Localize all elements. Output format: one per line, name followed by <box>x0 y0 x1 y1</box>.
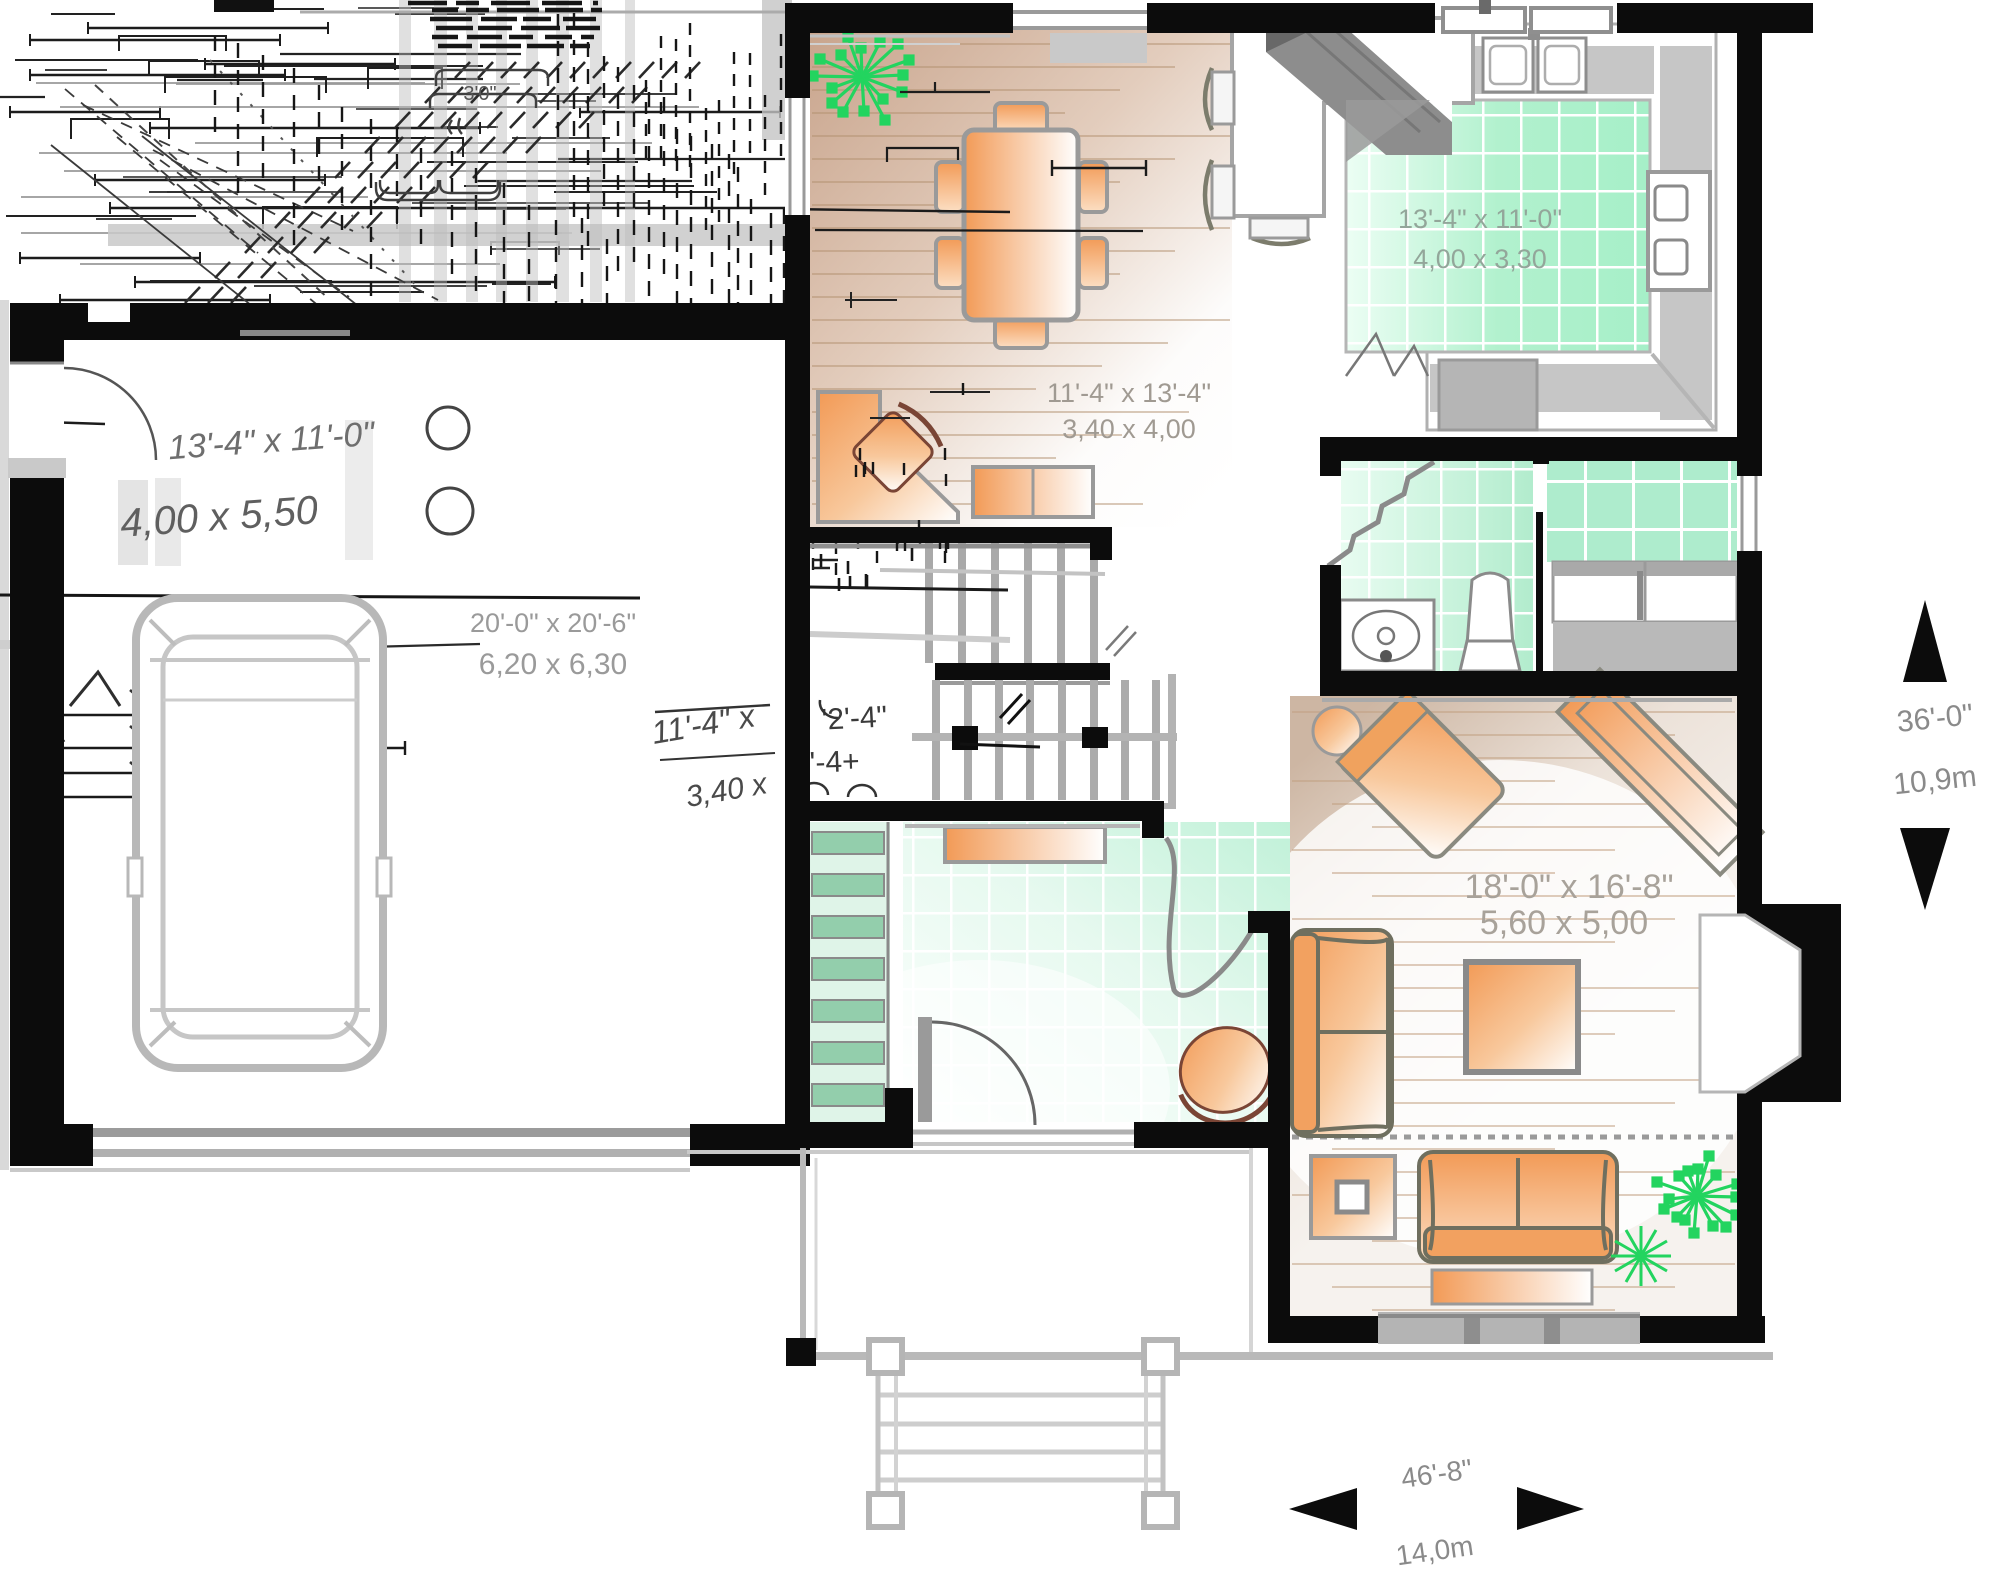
svg-text:6,20 x 6,30: 6,20 x 6,30 <box>479 648 627 681</box>
svg-text:20'-0" x 20'-6": 20'-0" x 20'-6" <box>470 608 636 638</box>
svg-text:5,60 x 5,00: 5,60 x 5,00 <box>1480 904 1648 942</box>
svg-text:'2'-4": '2'-4" <box>821 700 888 736</box>
svg-text:3,40 x 4,00: 3,40 x 4,00 <box>1062 414 1196 444</box>
svg-text:3'0": 3'0" <box>463 83 496 105</box>
svg-text:13'-4" x 11'-0": 13'-4" x 11'-0" <box>1398 204 1562 234</box>
svg-text:4,00 x 3,30: 4,00 x 3,30 <box>1413 244 1547 274</box>
svg-text:11'-4" x 13'-4": 11'-4" x 13'-4" <box>1047 378 1211 408</box>
svg-text:18'-0" x 16'-8": 18'-0" x 16'-8" <box>1464 868 1673 906</box>
